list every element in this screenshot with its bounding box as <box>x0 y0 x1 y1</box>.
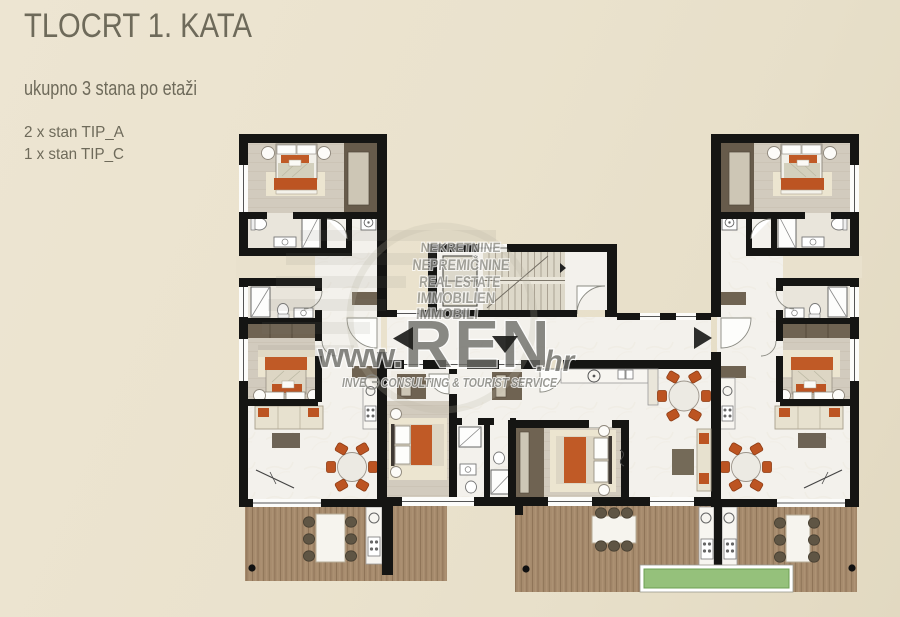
svg-text:TLOCRT 1. KATA: TLOCRT 1. KATA <box>24 7 252 45</box>
svg-text:REAL ESTATE: REAL ESTATE <box>419 274 501 291</box>
svg-text:INVE: INVE <box>342 376 367 390</box>
svg-text:ukupno 3 stana po etaži: ukupno 3 stana po etaži <box>24 78 197 100</box>
svg-text:www.: www. <box>317 337 402 375</box>
svg-text:IMMOBILIEN: IMMOBILIEN <box>417 290 496 307</box>
svg-text:2 x stan TIP_A: 2 x stan TIP_A <box>24 124 124 141</box>
svg-text:NEPREMIČNINE: NEPREMIČNINE <box>412 256 510 274</box>
svg-text:CONSULTING & TOURIST SERVICE: CONSULTING & TOURIST SERVICE <box>381 376 558 390</box>
svg-text:.hr: .hr <box>536 345 577 378</box>
svg-text:REN: REN <box>404 307 551 382</box>
svg-text:1 x stan TIP_C: 1 x stan TIP_C <box>24 146 124 163</box>
svg-text:NEKRETNINE: NEKRETNINE <box>420 240 501 255</box>
